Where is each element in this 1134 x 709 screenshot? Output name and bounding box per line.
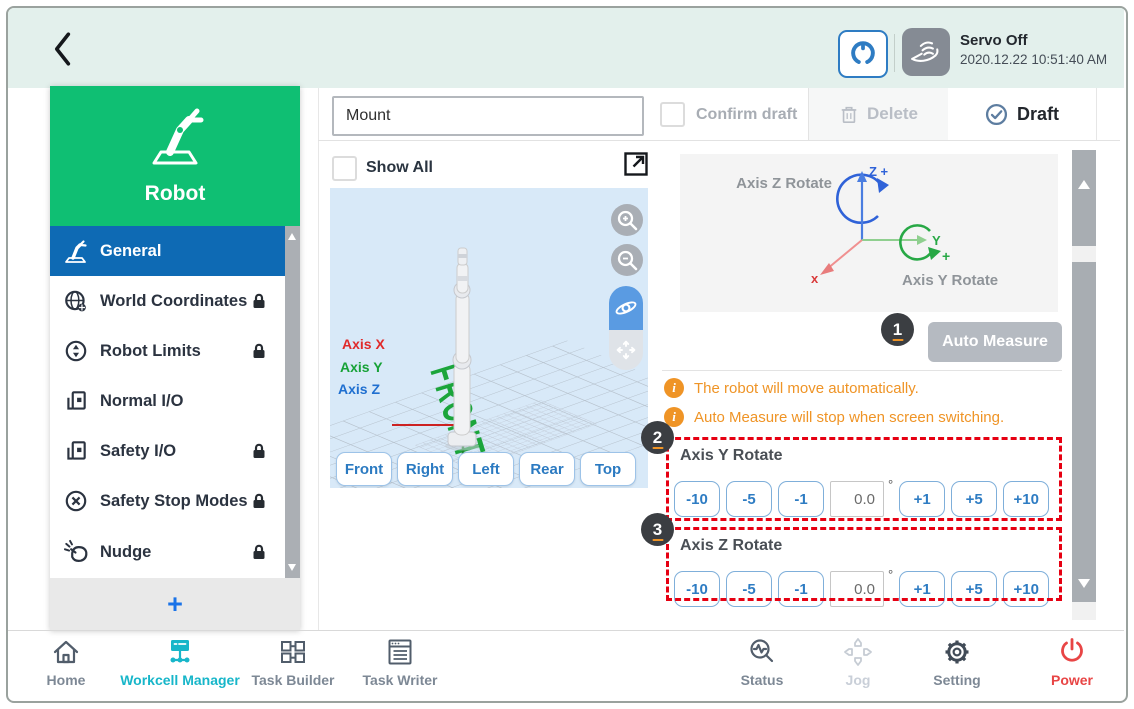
view-top-button[interactable]: Top: [580, 452, 636, 486]
nav-label: Workcell Manager: [120, 672, 240, 688]
y-axis-plus-label: +: [942, 248, 950, 264]
confirm-draft-checkbox[interactable]: [660, 102, 685, 127]
header-band: [8, 8, 1124, 88]
panel-divider: [662, 370, 1062, 371]
z-axis-label: Z +: [869, 164, 889, 179]
auto-measure-button[interactable]: Auto Measure: [928, 322, 1062, 362]
safety-io-icon: [63, 438, 89, 464]
axis-y-plus-5-button[interactable]: +5: [951, 481, 997, 517]
axis-z-plus-1-button[interactable]: +1: [899, 571, 945, 607]
servo-connect-icon: [848, 39, 878, 69]
back-button[interactable]: [48, 30, 84, 70]
safety-stop-icon: [63, 488, 89, 514]
sidebar-item-label: Robot Limits: [100, 342, 201, 361]
row-divider: [318, 140, 1120, 141]
header-divider: [894, 34, 895, 72]
axis-y-label: Axis Y: [340, 359, 383, 375]
orbit-icon: [613, 295, 639, 321]
axis-z-spin-row: -10 -5 -1 ° +1 +5 +10: [674, 571, 1049, 607]
general-icon: [63, 238, 89, 264]
callout-3: 3: [641, 513, 674, 546]
nav-workcell-manager[interactable]: Workcell Manager: [110, 636, 250, 698]
setting-icon: [940, 636, 974, 668]
sidebar-item-label: Safety I/O: [100, 442, 176, 461]
axis-y-minus-1-button[interactable]: -1: [778, 481, 824, 517]
lock-icon: [249, 542, 269, 562]
sidebar-item-robot-limits[interactable]: Robot Limits: [50, 326, 285, 377]
trash-icon: [839, 104, 859, 125]
workcell-name-input[interactable]: [332, 96, 644, 136]
callout-1: 1: [881, 313, 914, 346]
robot-3d-viewer[interactable]: FRONT Axis X Axis Y Axis Z: [330, 188, 648, 488]
nudge-icon: [63, 539, 89, 565]
sidebar-item-normal-io[interactable]: Normal I/O: [50, 376, 285, 427]
sidebar-item-label: Normal I/O: [100, 392, 183, 411]
scrollbar-thumb-bottom[interactable]: [1072, 262, 1096, 602]
timestamp: 2020.12.22 10:51:40 AM: [960, 52, 1107, 67]
show-all-checkbox[interactable]: [332, 156, 357, 181]
axis-y-spin-row: -10 -5 -1 ° +1 +5 +10: [674, 481, 1049, 517]
nav-label: Task Writer: [363, 672, 438, 688]
axis-x-label: Axis X: [342, 336, 385, 352]
axis-y-rotate-label: Axis Y Rotate: [902, 272, 998, 289]
axis-z-angle-input[interactable]: [830, 571, 884, 607]
info-icon: i: [664, 378, 684, 398]
pan-icon: [614, 338, 638, 362]
plus-icon: +: [167, 591, 183, 618]
scrollbar-thumb-top[interactable]: [1072, 150, 1096, 246]
draft-label: Draft: [1017, 104, 1059, 125]
rotation-diagram: Axis Z Rotate Z + Y + x Axis Y Rotate: [680, 154, 1058, 312]
view-right-button[interactable]: Right: [397, 452, 453, 486]
nav-label: Task Builder: [252, 672, 335, 688]
lock-icon: [249, 341, 269, 361]
axis-z-minus-5-button[interactable]: -5: [726, 571, 772, 607]
show-all-label: Show All: [366, 159, 433, 177]
power-icon: [1055, 636, 1089, 668]
expand-viewer-button[interactable]: [622, 150, 650, 178]
expand-icon: [622, 150, 650, 178]
sidebar-item-label: Safety Stop Modes: [100, 492, 248, 511]
jog-icon: [841, 636, 875, 668]
sidebar-item-label: Nudge: [100, 543, 151, 562]
zoom-out-button[interactable]: [611, 244, 643, 276]
delete-label: Delete: [867, 104, 918, 124]
sidebar-item-nudge[interactable]: Nudge: [50, 526, 285, 579]
sidebar: Robot General: [50, 86, 300, 630]
nav-label: Status: [741, 672, 784, 688]
task-builder-icon: [276, 636, 310, 668]
axis-y-plus-10-button[interactable]: +10: [1003, 481, 1049, 517]
status-icon: [745, 636, 779, 668]
sidebar-item-safety-io[interactable]: Safety I/O: [50, 426, 285, 477]
axis-y-plus-1-button[interactable]: +1: [899, 481, 945, 517]
workcell-manager-screen: Servo Off 2020.12.22 10:51:40 AM Robot: [0, 0, 1134, 709]
sidebar-add-button[interactable]: +: [50, 578, 300, 630]
normal-io-icon: [63, 388, 89, 414]
nav-label: Setting: [933, 672, 980, 688]
draft-button[interactable]: Draft: [948, 88, 1097, 140]
scroll-down-icon: [288, 564, 296, 571]
note-row: i Auto Measure will stop when screen swi…: [664, 407, 1084, 427]
nav-task-writer[interactable]: Task Writer: [345, 636, 455, 698]
lock-icon: [249, 491, 269, 511]
workcell-manager-icon: [163, 636, 197, 668]
axis-z-minus-1-button[interactable]: -1: [778, 571, 824, 607]
axis-y-degree-unit: °: [888, 477, 893, 492]
viewer-mode-toggle: [609, 286, 643, 370]
axis-z-minus-10-button[interactable]: -10: [674, 571, 720, 607]
sidebar-item-label: World Coordinates: [100, 292, 247, 311]
view-left-button[interactable]: Left: [458, 452, 514, 486]
zoom-in-icon: [615, 208, 639, 232]
nav-home[interactable]: Home: [11, 636, 121, 698]
nav-label: Home: [47, 672, 86, 688]
panel-scrollbar[interactable]: [1072, 150, 1096, 620]
zoom-in-button[interactable]: [611, 204, 643, 236]
note-row: i The robot will move automatically.: [664, 378, 1064, 398]
scroll-down-icon: [1078, 579, 1090, 588]
sidebar-item-world-coordinates[interactable]: World Coordinates: [50, 276, 285, 327]
check-circle-icon: [985, 103, 1008, 126]
lock-icon: [249, 291, 269, 311]
task-writer-icon: [383, 636, 417, 668]
axis-z-plus-10-button[interactable]: +10: [1003, 571, 1049, 607]
pan-mode-button[interactable]: [609, 330, 643, 370]
sidebar-scrollbar[interactable]: [285, 226, 300, 578]
robot-icon: [143, 104, 207, 172]
hand-guide-indicator[interactable]: [902, 28, 950, 76]
bottom-nav-divider: [8, 630, 1124, 631]
lock-icon: [249, 441, 269, 461]
back-icon: [48, 30, 84, 68]
robot-limits-icon: [63, 338, 89, 364]
nav-power[interactable]: Power: [1017, 636, 1127, 698]
main-divider: [318, 88, 319, 630]
view-front-button[interactable]: Front: [336, 452, 392, 486]
servo-status: Servo Off: [960, 32, 1028, 49]
axis-z-section-title: Axis Z Rotate: [680, 537, 782, 555]
x-axis-label: x: [811, 271, 819, 286]
sidebar-item-label: General: [100, 242, 161, 261]
sidebar-item-general[interactable]: General: [50, 226, 285, 277]
servo-connect-button[interactable]: [838, 30, 888, 78]
note-text: The robot will move automatically.: [694, 380, 919, 397]
scroll-up-icon: [1078, 180, 1090, 189]
axis-y-angle-input[interactable]: [830, 481, 884, 517]
orbit-mode-button[interactable]: [609, 286, 643, 330]
home-icon: [49, 636, 83, 668]
axis-y-minus-10-button[interactable]: -10: [674, 481, 720, 517]
sidebar-header: Robot: [50, 86, 300, 226]
view-rear-button[interactable]: Rear: [519, 452, 575, 486]
axis-z-plus-5-button[interactable]: +5: [951, 571, 997, 607]
scroll-up-icon: [288, 233, 296, 240]
hand-icon: [907, 33, 945, 71]
sidebar-item-safety-stop-modes[interactable]: Safety Stop Modes: [50, 476, 285, 527]
callout-2: 2: [641, 421, 674, 454]
delete-button[interactable]: Delete: [808, 88, 949, 140]
zoom-out-icon: [615, 248, 639, 272]
nav-label: Power: [1051, 672, 1093, 688]
sidebar-title: Robot: [50, 182, 300, 206]
nav-setting[interactable]: Setting: [902, 636, 1012, 698]
nav-status[interactable]: Status: [707, 636, 817, 698]
nav-jog: Jog: [803, 636, 913, 698]
axis-z-label: Axis Z: [338, 381, 380, 397]
axis-y-minus-5-button[interactable]: -5: [726, 481, 772, 517]
axis-y-section-title: Axis Y Rotate: [680, 447, 783, 465]
app-frame: Servo Off 2020.12.22 10:51:40 AM Robot: [6, 6, 1128, 703]
axis-z-degree-unit: °: [888, 567, 893, 582]
confirm-draft-label: Confirm draft: [696, 106, 797, 124]
nav-task-builder[interactable]: Task Builder: [233, 636, 353, 698]
world-coordinates-icon: [63, 288, 89, 314]
note-text: Auto Measure will stop when screen switc…: [694, 409, 1004, 426]
nav-label: Jog: [846, 672, 871, 688]
axis-z-rotate-label: Axis Z Rotate: [736, 175, 832, 192]
y-axis-label: Y: [932, 233, 941, 248]
